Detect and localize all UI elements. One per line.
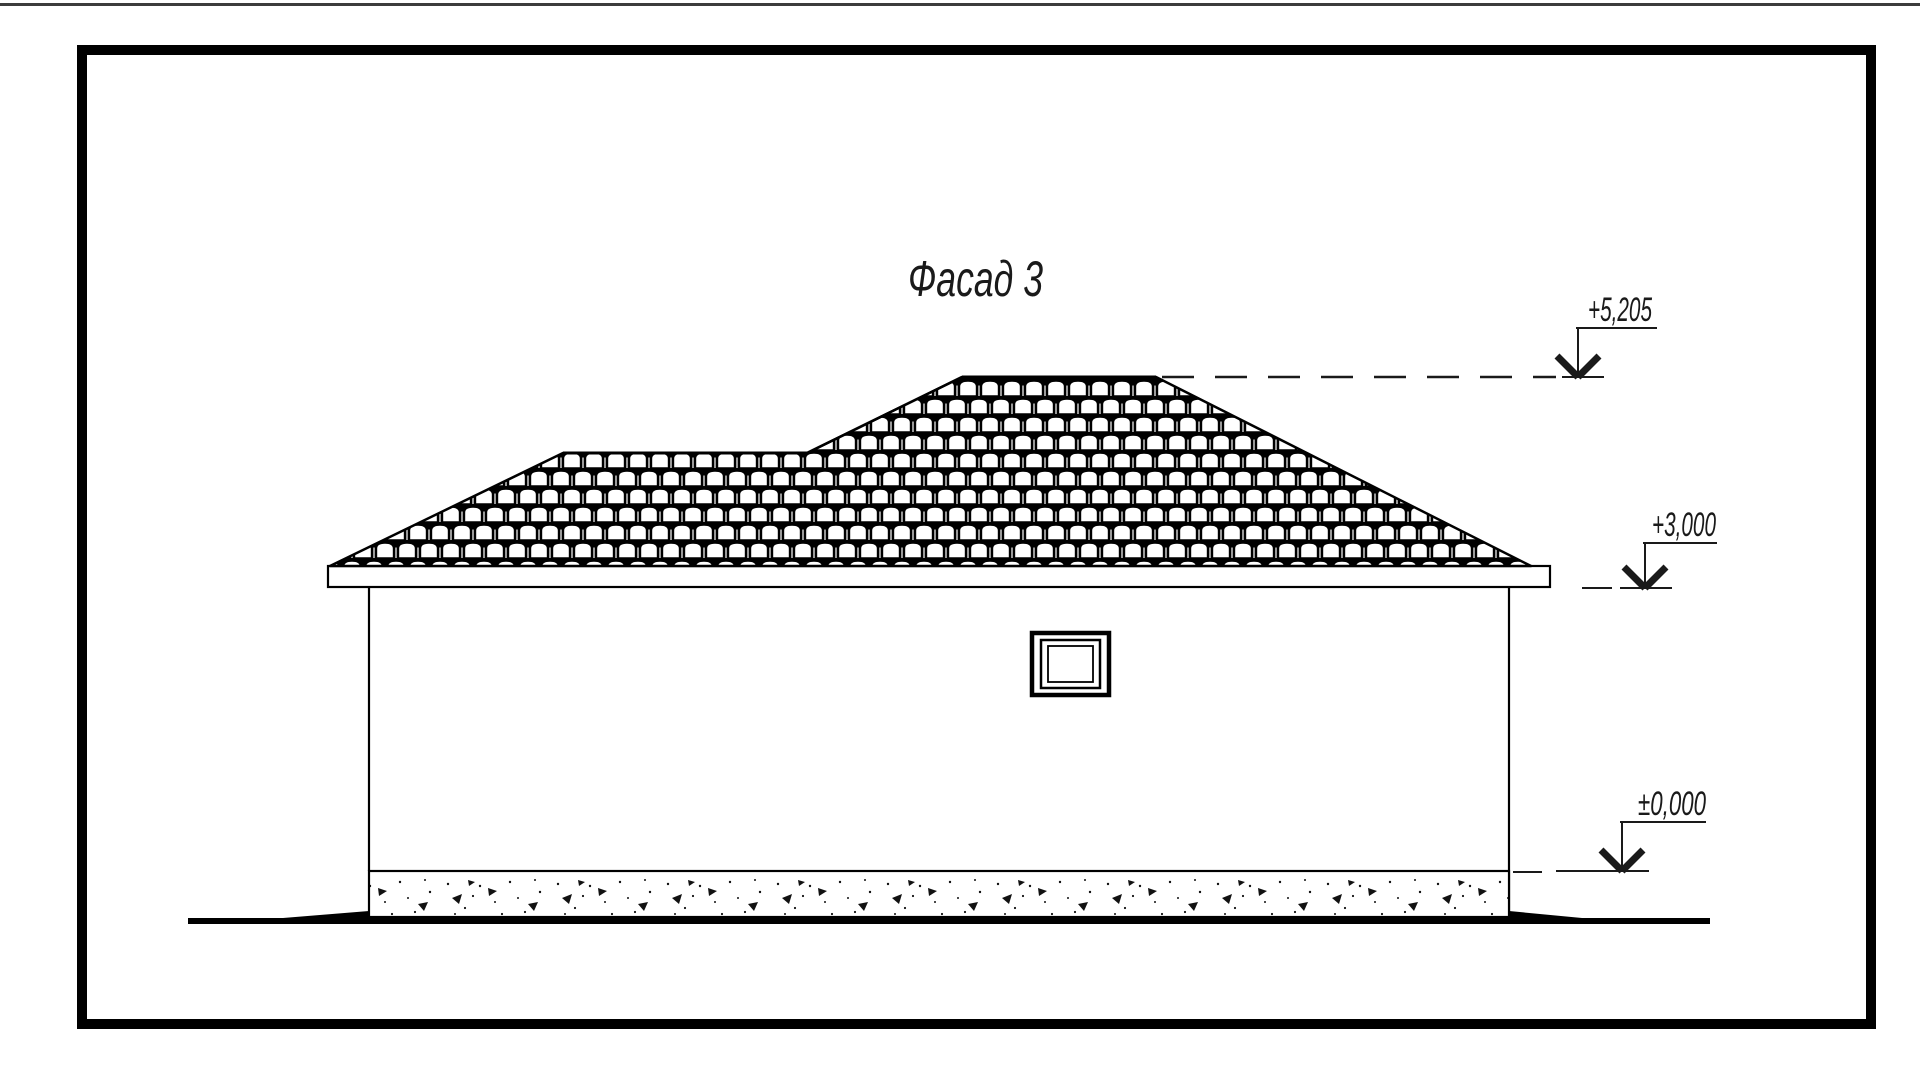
drawing-title: Фасад 3 (908, 251, 1043, 307)
plinth-strip (369, 871, 1509, 917)
ground-line-bar (188, 918, 1710, 924)
elevation-marker-ridge: +5,205 (1162, 291, 1657, 377)
right-apron-wedge (1509, 911, 1582, 918)
elevation-marker-eaves: +3,000 (1582, 506, 1717, 588)
building-elevation (188, 377, 1710, 924)
facade-elevation-drawing: Фасад 3 +5,205 +3,000 ±0,000 (0, 0, 1920, 1080)
eaves-elevation-value: +3,000 (1652, 506, 1716, 544)
eaves-fascia-band (328, 566, 1550, 587)
window (1032, 633, 1109, 695)
ground-elevation-value: ±0,000 (1638, 785, 1706, 823)
ridge-elevation-value: +5,205 (1588, 291, 1652, 329)
tiled-roof (330, 377, 1531, 566)
elevation-marker-ground: ±0,000 (1513, 785, 1706, 872)
left-apron-wedge (283, 911, 369, 918)
wall (369, 587, 1509, 918)
window-outer-frame (1032, 633, 1109, 695)
